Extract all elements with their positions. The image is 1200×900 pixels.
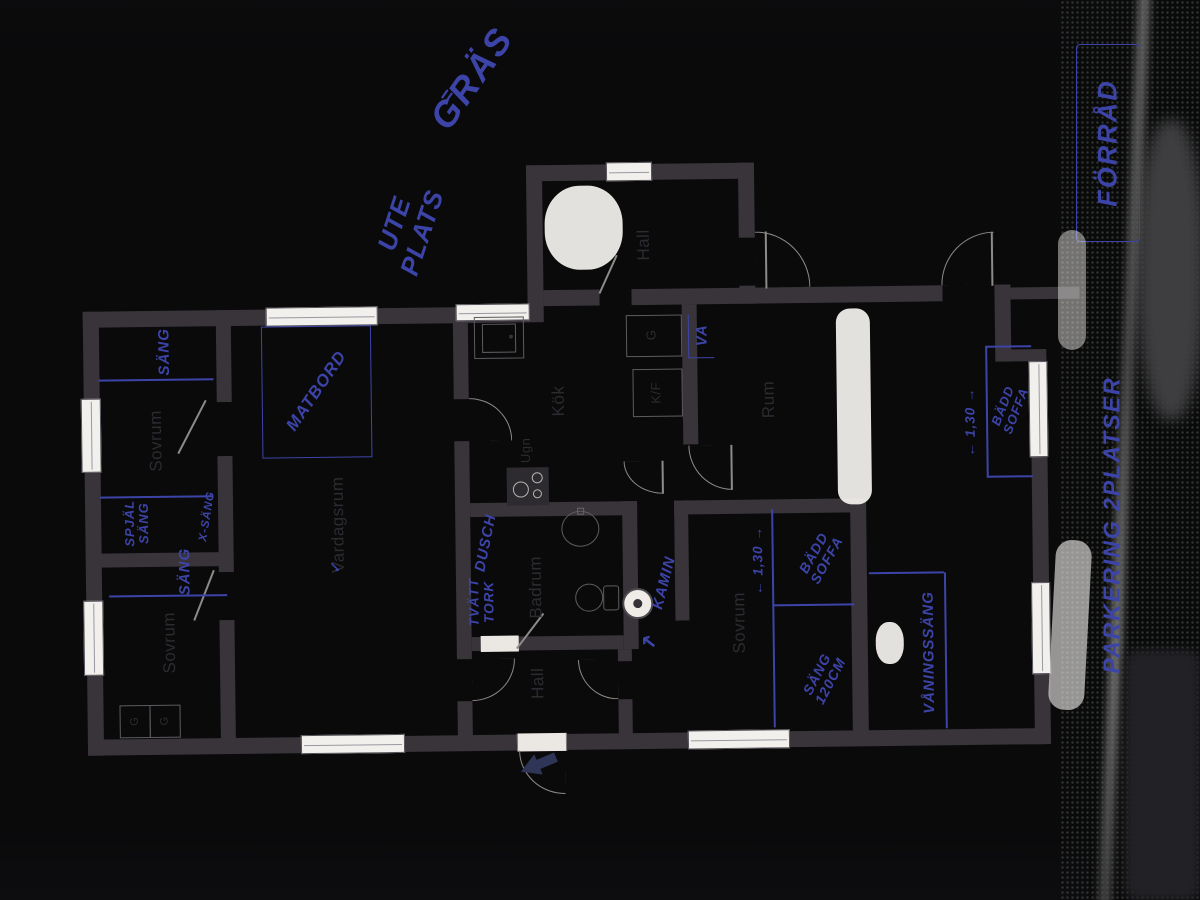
room-label-sovrum-right: Sovrum — [729, 592, 750, 654]
faucet-dot — [509, 335, 513, 339]
annotation-spjal-sang: SPJÄL SÄNG — [123, 500, 152, 547]
pen-line — [985, 345, 1031, 348]
whiteout-mark — [544, 185, 623, 270]
door-leaf — [177, 400, 206, 454]
wall — [526, 165, 544, 322]
door-leaf — [730, 445, 733, 490]
whiteout-mark — [876, 622, 905, 664]
door-arc — [755, 231, 811, 288]
burner-icon — [513, 481, 529, 497]
room-label-hall-bottom: Hall — [528, 668, 548, 700]
kamin-arrow-icon: ↖ — [636, 628, 660, 657]
pen-line — [98, 378, 213, 381]
room-label-vardagsrum: Vardagsrum — [328, 476, 349, 573]
floor-plan: Hall Sovrum Sovrum Sovrum Vardagsrum Kök… — [0, 0, 1200, 900]
room-label-badrum: Badrum — [526, 556, 547, 619]
wall — [457, 701, 472, 739]
pen-line — [100, 495, 213, 498]
room-label-rum: Rum — [759, 381, 779, 419]
tape-crinkle-mark — [1058, 230, 1086, 350]
wall — [618, 649, 632, 661]
annotation-dim-rum: ← 1,30 → — [962, 388, 978, 457]
annotation-dusch: DUSCH — [471, 513, 499, 574]
wall — [850, 498, 869, 734]
toilet-symbol — [575, 583, 603, 611]
annotation-badd-soffa-rum: BÄDD SOFFA — [988, 381, 1032, 436]
annotation-dim-sovrum: ← 1,30 → — [750, 526, 766, 595]
wall — [543, 290, 599, 307]
door-opening — [481, 636, 519, 652]
whiteout-mark — [836, 308, 872, 504]
window — [1031, 582, 1051, 674]
annotation-vaningssang: VÅNINGSSÄNG — [920, 591, 938, 714]
pen-line — [985, 347, 989, 477]
door-arc — [472, 659, 516, 702]
wall — [738, 163, 755, 238]
door-arc — [624, 461, 664, 494]
window — [301, 734, 405, 754]
door-arc — [688, 445, 733, 491]
annotation-badd-soffa-sovrum: BÄDD SOFFA — [795, 527, 847, 587]
annotation-checkmark: ✓ — [328, 562, 344, 574]
annotation-sang-top: SÄNG — [155, 328, 173, 376]
label-closet-kitchen: G — [643, 329, 658, 340]
pen-line — [772, 603, 854, 606]
pen-line — [109, 594, 227, 597]
door-arc — [941, 232, 995, 286]
window — [83, 601, 104, 676]
toilet-tank — [603, 585, 619, 610]
door-leaf — [662, 461, 664, 494]
room-label-kok: Kök — [549, 385, 569, 416]
pen-line — [771, 509, 776, 727]
room-label-sovrum-top-left: Sovrum — [146, 410, 167, 472]
label-closet-1: G — [129, 717, 141, 726]
label-closet-2: G — [159, 716, 171, 725]
burner-icon — [533, 489, 542, 498]
room-label-sovrum-bottom-left: Sovrum — [159, 612, 180, 674]
pen-line — [869, 571, 944, 574]
annotation-sang-left: SÄNG — [176, 548, 194, 596]
floor-plan-photo: Hall Sovrum Sovrum Sovrum Vardagsrum Kök… — [0, 0, 1200, 900]
wall — [216, 310, 232, 402]
wall — [94, 552, 233, 568]
label-ugn: Ugn — [518, 438, 533, 464]
annotation-parkering: PARKERING 2PLATSER — [1099, 376, 1126, 673]
pen-line — [987, 475, 1033, 478]
wall — [622, 501, 639, 649]
annotation-sang-120: SÄNG 120CM — [799, 648, 849, 707]
window — [1028, 361, 1048, 457]
wall — [217, 456, 233, 572]
wall — [674, 498, 866, 514]
pen-line — [944, 572, 948, 728]
wall — [83, 312, 104, 756]
room-label-hall-top: Hall — [634, 229, 654, 261]
stove-symbol — [507, 467, 549, 506]
annotation-va: VA — [693, 324, 710, 346]
window — [81, 399, 102, 473]
washbasin-symbol — [561, 511, 599, 547]
wall — [618, 699, 632, 737]
annotation-tvatt-tork: TVÄTT TORK — [467, 578, 497, 627]
door-arc — [578, 659, 618, 699]
door-arc — [469, 398, 513, 442]
wall — [631, 285, 942, 305]
annotation-x-sang: X-SÄNG — [197, 490, 217, 542]
wall — [219, 620, 235, 742]
window — [606, 162, 652, 182]
label-kf: K/F — [648, 382, 663, 404]
window — [688, 729, 790, 749]
burner-icon — [532, 472, 543, 483]
wall — [454, 441, 472, 659]
window — [266, 306, 378, 326]
washbasin-tap — [577, 508, 584, 515]
annotation-forrad: FÖRRÅD — [1093, 79, 1124, 207]
